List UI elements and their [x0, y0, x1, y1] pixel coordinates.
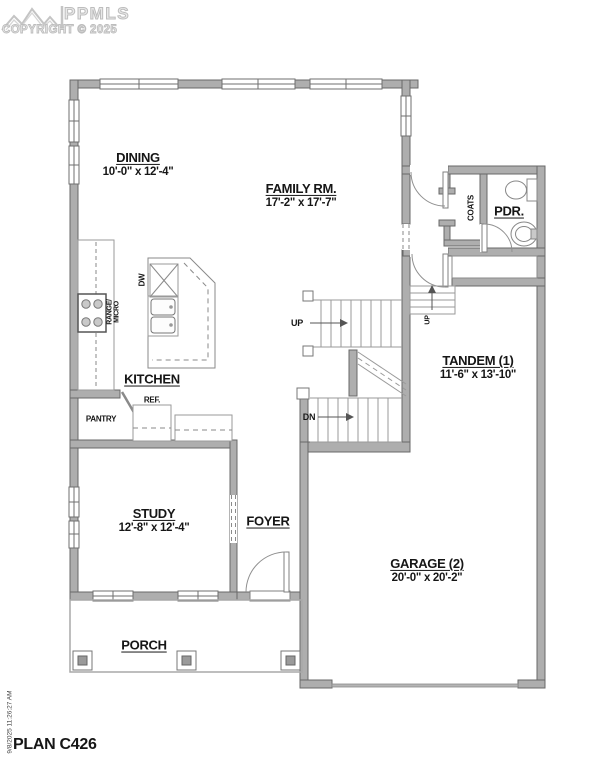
- room-name: GARAGE (2): [390, 557, 464, 572]
- room-label-study: STUDY 12'-8" x 12'-4": [119, 507, 190, 535]
- cased-openings: [230, 224, 410, 543]
- room-label-kitchen: KITCHEN: [124, 373, 180, 388]
- dn-arrow: [346, 413, 354, 421]
- copyright-text: COPYRIGHT © 2025: [2, 24, 117, 36]
- room-dims: 10'-0" x 12'-4": [103, 166, 174, 179]
- toilet-tank: [527, 179, 537, 201]
- room-dims: 12'-8" x 12'-4": [119, 522, 190, 535]
- range-icon: [78, 294, 106, 332]
- room-label-tandem: TANDEM (1) 11'-6" x 13'-10": [440, 354, 516, 382]
- room-label-garage: GARAGE (2) 20'-0" x 20'-2": [390, 557, 464, 585]
- ref-label: REF.: [144, 395, 160, 404]
- garage-up-label: UP: [424, 315, 431, 324]
- up-arrow: [340, 319, 348, 327]
- room-label-foyer: FOYER: [246, 515, 289, 530]
- room-name: FOYER: [246, 515, 289, 530]
- floor-plan-canvas: PPMLS COPYRIGHT © 2025 DINING 10'-0" x 1…: [0, 0, 614, 768]
- room-name: KITCHEN: [124, 373, 180, 388]
- kitchen-fixtures: [78, 240, 232, 441]
- dw-label: DW: [137, 274, 146, 287]
- room-label-dining: DINING 10'-0" x 12'-4": [103, 151, 174, 179]
- stair-landing: [452, 256, 537, 278]
- logo-text: PPMLS: [64, 4, 130, 24]
- room-name: PORCH: [121, 639, 166, 654]
- room-label-pdr: PDR.: [494, 205, 524, 220]
- room-name: FAMILY RM.: [266, 182, 337, 197]
- room-label-family: FAMILY RM. 17'-2" x 17'-7": [266, 182, 337, 210]
- porch-posts: [73, 651, 300, 670]
- room-label-porch: PORCH: [121, 639, 166, 654]
- room-name: TANDEM (1): [440, 354, 516, 369]
- refrigerator-icon: [133, 405, 171, 441]
- room-dims: 11'-6" x 13'-10": [440, 369, 516, 382]
- room-name: PDR.: [494, 205, 524, 220]
- plan-code-label: PLAN C426: [13, 736, 97, 754]
- range-micro-label: RANGE/ MICRO: [107, 299, 122, 324]
- range-line1: RANGE/: [107, 299, 114, 324]
- room-dims: 20'-0" x 20'-2": [390, 572, 464, 585]
- room-dims: 17'-2" x 17'-7": [266, 197, 337, 210]
- porch-structure: [70, 600, 302, 672]
- range-line2: MICRO: [114, 299, 121, 324]
- room-name: DINING: [103, 151, 174, 166]
- floorplan-drawing: [0, 0, 614, 768]
- pantry-label: PANTRY: [86, 414, 116, 423]
- door-opening: [410, 165, 448, 175]
- garage-door-line: [332, 684, 518, 687]
- toilet-icon: [506, 181, 527, 199]
- coats-label: COATS: [466, 195, 475, 221]
- ppmls-logo: PPMLS COPYRIGHT © 2025: [0, 0, 140, 44]
- room-name: STUDY: [119, 507, 190, 522]
- counter-icon: [175, 415, 232, 441]
- up-label: UP: [291, 318, 303, 328]
- dn-label: DN: [303, 412, 315, 422]
- timestamp-label: 9/8/2025 11:26:27 AM: [7, 690, 14, 753]
- stair-break-line: [358, 352, 406, 396]
- doors-layer: [122, 165, 512, 601]
